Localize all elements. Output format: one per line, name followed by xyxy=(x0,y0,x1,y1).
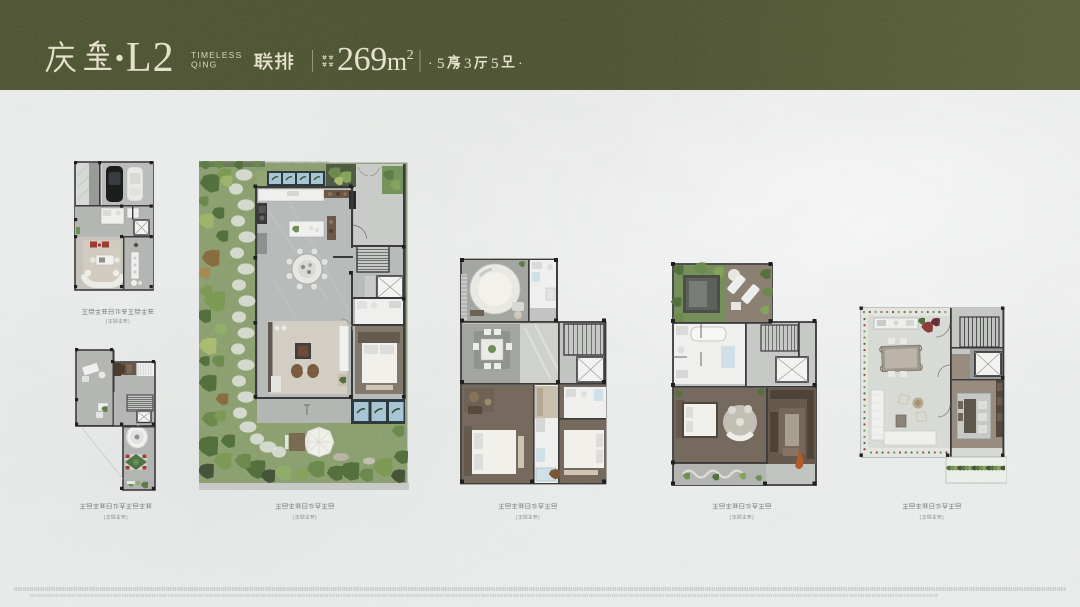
svg-text:5: 5 xyxy=(491,56,499,72)
svg-text:): ) xyxy=(942,515,944,521)
svg-text:(: ( xyxy=(106,319,108,325)
svg-text:): ) xyxy=(752,515,754,521)
svg-text:(: ( xyxy=(730,515,732,521)
svg-text:·: · xyxy=(428,57,433,72)
svg-text:L2: L2 xyxy=(126,35,175,81)
svg-text:(: ( xyxy=(104,515,106,521)
svg-text:(: ( xyxy=(516,515,518,521)
svg-text:·: · xyxy=(518,57,523,72)
svg-text:(: ( xyxy=(920,515,922,521)
svg-text:5: 5 xyxy=(437,56,445,72)
svg-text:): ) xyxy=(128,319,130,325)
svg-text:): ) xyxy=(538,515,540,521)
svg-text:269m2: 269m2 xyxy=(337,41,414,78)
svg-text:): ) xyxy=(126,515,128,521)
svg-text:QING: QING xyxy=(191,60,217,70)
svg-text:3: 3 xyxy=(464,56,472,72)
svg-text:): ) xyxy=(315,515,317,521)
svg-text:(: ( xyxy=(293,515,295,521)
svg-text:TIMELESS: TIMELESS xyxy=(191,50,242,60)
